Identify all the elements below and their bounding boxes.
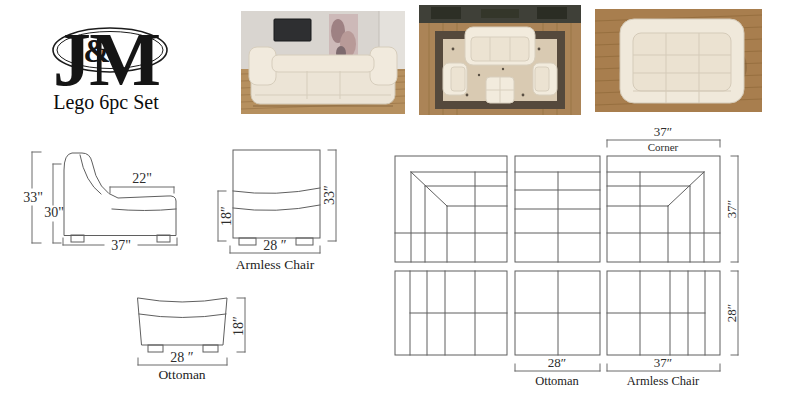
dim-plan-ottoman-width: 28″ Ottoman [515, 355, 600, 388]
console-band [419, 5, 581, 23]
dim-corner-depth: 37″ [724, 156, 739, 262]
dim-seat-height: 18″ [218, 191, 234, 241]
dim-plan-armless-width-label: 37″ [654, 355, 672, 370]
dim-total-height-label: 33" [23, 190, 43, 205]
spec-sheet: J & M Lego 6pc Set sofa-lifestyle-front-… [0, 0, 800, 408]
dim-corner-width: 37″ Corner [607, 124, 720, 153]
dim-seat-depth: 22" [110, 171, 174, 193]
corner-caption: Corner [648, 141, 679, 153]
armless-chair-front-drawing: 18″ 33″ 28 ″ Armless Chair [218, 150, 337, 272]
ottoman-cell [515, 271, 600, 355]
dim-chair-height-label: 33″ [322, 185, 337, 205]
ottoman-front-drawing: 18″ 28 ″ Ottoman [138, 298, 246, 382]
sofa-front [249, 47, 397, 106]
corner-left-cell [395, 156, 507, 262]
dim-ottoman-width-label: 28 ″ [170, 350, 194, 365]
dim-total-depth: 37" [63, 238, 177, 253]
product-photo-top-view: sofa-lifestyle-top-view-photo [419, 5, 581, 115]
logo-letter-m: M [89, 17, 161, 101]
pit-sectional [619, 19, 747, 103]
dim-chair-height: 33″ [322, 150, 337, 241]
armless-bottom-left-cell [395, 271, 507, 355]
product-set-title: Lego 6pc Set [53, 91, 159, 114]
plan-ottoman-caption: Ottoman [535, 374, 579, 388]
dim-row2-depth-label: 28″ [724, 304, 739, 322]
plan-armless-caption: Armless Chair [627, 374, 700, 388]
dim-plan-armless-width: 37″ Armless Chair [607, 355, 720, 388]
jm-logo: J & M Lego 6pc Set [28, 6, 208, 121]
dim-row2-depth: 28″ [724, 271, 739, 355]
wall-tv [274, 19, 311, 41]
corner-right-cell [607, 156, 720, 262]
dim-seat-height-label: 18″ [219, 206, 234, 226]
dim-total-depth-label: 37" [111, 238, 131, 253]
armless-bottom-right-cell [607, 271, 720, 355]
armless-top-cell [515, 156, 600, 262]
dim-corner-depth-label: 37″ [724, 200, 739, 218]
dim-ottoman-height: 18″ [231, 298, 246, 352]
dim-corner-width-label: 37″ [654, 124, 672, 139]
ottoman-caption: Ottoman [158, 367, 205, 382]
product-photo-front-view: sofa-lifestyle-front-view-photo [241, 11, 405, 114]
dim-total-height: 33" [23, 152, 43, 243]
dim-back-height: 30" [44, 164, 64, 243]
side-view-drawing: 33" 30" 22" 37 [23, 152, 177, 253]
armless-chair-caption: Armless Chair [236, 257, 315, 272]
dim-plan-ottoman-width-label: 28″ [548, 355, 566, 370]
dim-seat-depth-label: 22" [132, 171, 152, 186]
dim-chair-width-label: 28 ″ [263, 238, 287, 253]
product-photo-pit-view: sofa-pit-configuration-photo [595, 9, 762, 112]
dim-ottoman-height-label: 18″ [231, 316, 246, 336]
plan-layout-diagram: 37″ Corner 37″ 28″ 28″ Ottoman [390, 115, 800, 408]
dim-back-height-label: 30" [44, 205, 64, 220]
front-side-drawings: 33" 30" 22" 37 [0, 130, 390, 408]
